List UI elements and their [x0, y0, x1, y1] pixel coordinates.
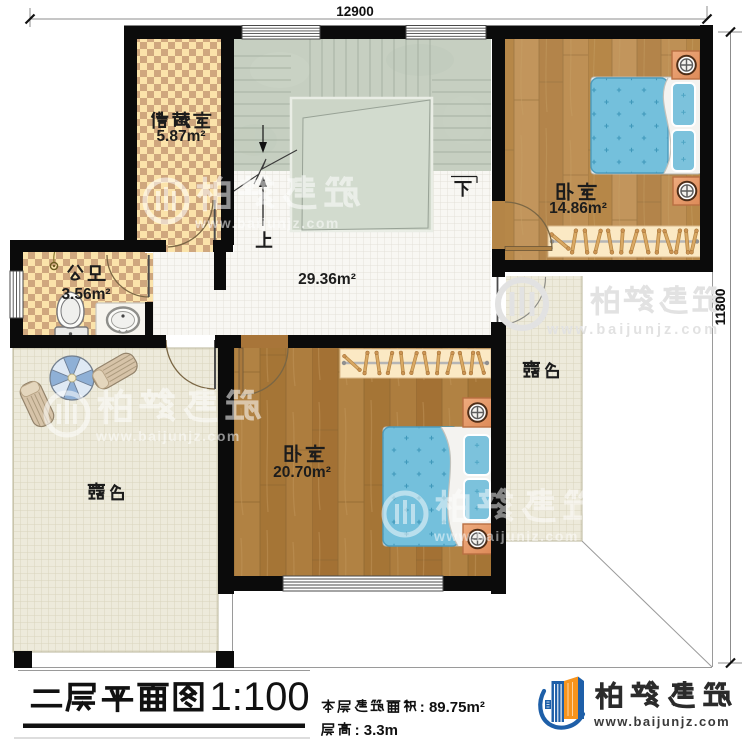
svg-text:12900: 12900	[336, 4, 374, 19]
svg-text:www.baijunjz.com: www.baijunjz.com	[546, 322, 720, 338]
svg-text:www.baijunjz.com: www.baijunjz.com	[433, 528, 579, 544]
svg-text:1:100: 1:100	[210, 675, 310, 719]
svg-text:3.56m²: 3.56m²	[61, 286, 110, 303]
svg-text:www.baijunjz.com: www.baijunjz.com	[593, 714, 730, 729]
svg-text:5.87m²: 5.87m²	[156, 128, 205, 145]
svg-text:: 3.3m: : 3.3m	[355, 722, 398, 739]
svg-text:: 89.75m²: : 89.75m²	[420, 699, 485, 716]
svg-text:14.86m²: 14.86m²	[549, 200, 607, 217]
svg-text:www.baijunjz.com: www.baijunjz.com	[194, 215, 340, 231]
svg-text:11800: 11800	[713, 289, 728, 326]
svg-text:29.36m²: 29.36m²	[298, 271, 356, 288]
svg-text:20.70m²: 20.70m²	[273, 464, 331, 481]
svg-text:www.baijunjz.com: www.baijunjz.com	[95, 428, 241, 444]
